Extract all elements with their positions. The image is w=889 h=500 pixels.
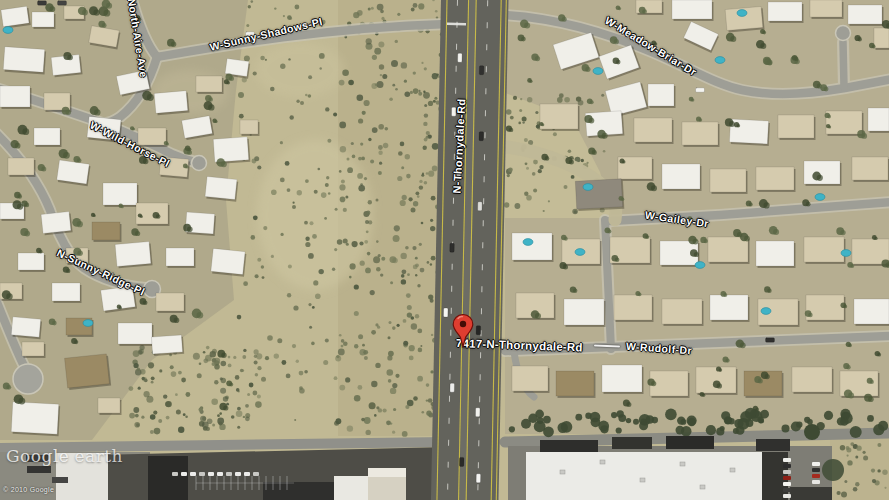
- tree: [50, 6, 56, 12]
- shrub: [292, 344, 296, 348]
- shrub: [413, 396, 418, 401]
- shrub: [863, 451, 866, 454]
- shrub: [385, 127, 389, 131]
- shrub: [412, 246, 416, 250]
- rooftop-unit: [700, 485, 705, 489]
- tree: [563, 264, 568, 269]
- tree: [221, 353, 226, 358]
- house-roof: [662, 164, 700, 189]
- shrub: [424, 113, 428, 117]
- vehicle: [696, 88, 705, 92]
- shrub: [884, 487, 886, 489]
- tree: [106, 3, 112, 9]
- parked-car: [783, 476, 791, 480]
- shrub: [372, 55, 377, 60]
- tree: [156, 214, 161, 219]
- shrub: [314, 190, 318, 194]
- tree: [765, 374, 770, 379]
- shrub: [400, 142, 405, 147]
- shrub: [159, 369, 162, 372]
- shrub: [388, 379, 392, 383]
- shrub: [175, 393, 178, 396]
- building-strip: [790, 487, 832, 500]
- house: [614, 295, 654, 322]
- shrub: [410, 91, 413, 94]
- tree-line: [521, 419, 531, 429]
- shrub: [252, 159, 257, 164]
- shrub: [423, 91, 425, 93]
- tree: [719, 368, 723, 372]
- tree: [729, 121, 735, 127]
- shrub: [393, 408, 396, 411]
- shrub: [362, 344, 365, 347]
- shrub: [308, 303, 311, 306]
- shrub: [395, 374, 399, 378]
- tree: [102, 23, 107, 28]
- shrub: [389, 321, 392, 324]
- house-roof: [708, 237, 748, 262]
- shrub: [360, 143, 363, 146]
- tree: [763, 31, 767, 35]
- vehicle: [475, 408, 480, 417]
- shrub: [129, 413, 135, 419]
- tree: [874, 237, 877, 240]
- tree: [626, 402, 631, 407]
- shrub: [199, 363, 202, 366]
- shrub: [339, 184, 345, 190]
- shrub: [379, 64, 384, 69]
- shrub: [265, 59, 267, 61]
- shrub: [228, 356, 231, 359]
- tree-line: [796, 421, 802, 427]
- shrub: [296, 360, 299, 363]
- tree: [638, 293, 642, 297]
- shrub: [354, 344, 358, 348]
- shrub: [320, 67, 322, 69]
- house: [34, 128, 62, 147]
- shrub: [380, 273, 383, 276]
- house: [3, 47, 46, 75]
- parked-car: [199, 472, 205, 476]
- shrub: [193, 353, 200, 360]
- shrub: [395, 88, 398, 91]
- shrub: [148, 362, 154, 368]
- shrub: [243, 281, 248, 286]
- shrub: [352, 155, 356, 159]
- house-roof: [22, 342, 44, 356]
- shrub: [381, 17, 384, 20]
- tree: [22, 128, 29, 135]
- shrub: [390, 281, 393, 284]
- shrub: [520, 98, 522, 100]
- house: [512, 366, 550, 393]
- house-roof: [240, 120, 258, 134]
- parked-car: [812, 480, 820, 484]
- house: [792, 367, 834, 394]
- tree-line: [665, 409, 677, 421]
- shrub: [154, 428, 161, 435]
- shrub: [518, 122, 521, 125]
- tree: [607, 229, 611, 233]
- shrub: [347, 158, 350, 161]
- tree-line: [824, 411, 833, 420]
- house: [92, 222, 122, 242]
- shrub: [136, 423, 140, 427]
- shrub: [335, 355, 341, 361]
- shrub: [418, 348, 423, 353]
- house: [56, 160, 90, 186]
- shrub: [426, 383, 430, 387]
- shrub: [392, 84, 395, 87]
- tree: [15, 143, 21, 149]
- shrub: [270, 87, 275, 92]
- tree: [17, 194, 22, 199]
- shrub: [210, 351, 216, 357]
- house: [868, 108, 889, 133]
- vehicle: [450, 383, 455, 392]
- shrub: [402, 269, 407, 274]
- tree: [147, 94, 154, 101]
- shrub: [401, 253, 407, 259]
- swimming-pool: [593, 68, 603, 75]
- vehicle: [443, 308, 448, 317]
- tree-line: [575, 414, 582, 421]
- tree: [94, 109, 100, 115]
- house: [682, 122, 720, 147]
- tree: [188, 147, 192, 151]
- house: [211, 248, 247, 276]
- shrub: [402, 195, 407, 200]
- house-roof: [92, 222, 120, 240]
- house: [512, 233, 554, 262]
- tree: [651, 381, 656, 386]
- tree: [140, 215, 143, 218]
- shrub: [325, 183, 329, 187]
- tree: [822, 459, 844, 481]
- tree-line: [509, 426, 515, 432]
- parked-car: [244, 472, 250, 476]
- shrub: [424, 67, 427, 70]
- shrub: [277, 338, 282, 343]
- shrub: [304, 221, 308, 225]
- tree: [758, 378, 763, 383]
- tree: [824, 87, 829, 92]
- swimming-pool: [841, 250, 851, 257]
- shrub: [525, 162, 528, 165]
- house: [103, 183, 139, 207]
- swimming-pool: [83, 320, 93, 327]
- shrub: [261, 265, 264, 268]
- shrub: [178, 427, 184, 433]
- tree: [121, 205, 124, 208]
- shrub: [129, 386, 134, 391]
- shrub: [383, 408, 387, 412]
- shrub: [841, 492, 847, 498]
- shrub: [340, 146, 346, 152]
- house: [154, 91, 189, 116]
- tree-line: [867, 415, 874, 422]
- shrub: [411, 323, 417, 329]
- house-roof: [848, 5, 882, 24]
- shrub: [378, 41, 384, 47]
- shrub: [369, 402, 376, 409]
- house: [196, 76, 224, 94]
- house-roof: [196, 76, 222, 92]
- shrub: [510, 116, 514, 120]
- shrub: [847, 455, 849, 457]
- swimming-pool: [523, 239, 533, 246]
- shrub: [292, 205, 296, 209]
- tree: [848, 344, 852, 348]
- house-roof: [874, 28, 889, 48]
- house: [540, 104, 580, 131]
- shrub: [285, 161, 290, 166]
- house: [804, 161, 842, 186]
- shrub: [236, 411, 243, 418]
- parked-car: [253, 472, 259, 476]
- tree: [74, 340, 78, 344]
- shrub: [430, 370, 433, 373]
- shrub: [186, 392, 191, 397]
- tree: [24, 231, 30, 237]
- tree: [749, 203, 753, 207]
- shrub: [394, 225, 400, 231]
- tree-line: [807, 419, 813, 425]
- shrub: [244, 56, 250, 62]
- tree-line: [873, 424, 884, 435]
- shrub: [522, 117, 527, 122]
- tree-line: [558, 423, 568, 433]
- shrub: [150, 430, 154, 434]
- shrub: [236, 388, 240, 392]
- swimming-pool: [815, 194, 825, 201]
- tree: [615, 257, 620, 262]
- shrub: [249, 383, 254, 388]
- shrub: [339, 334, 342, 337]
- tree-line: [611, 412, 617, 418]
- tree: [767, 60, 773, 66]
- house-roof: [868, 108, 889, 131]
- tree: [808, 313, 813, 318]
- tree: [828, 126, 831, 129]
- tree-line: [676, 426, 685, 435]
- shrub: [368, 200, 372, 204]
- tree: [877, 353, 881, 357]
- shrub: [354, 311, 359, 316]
- shrub: [343, 239, 348, 244]
- shrub: [245, 404, 249, 408]
- shrub: [309, 326, 312, 329]
- tree: [723, 293, 727, 297]
- tree: [52, 321, 57, 326]
- tree: [93, 9, 99, 15]
- building-roof-dark: [540, 440, 598, 453]
- vehicle: [476, 326, 481, 335]
- shrub: [846, 446, 850, 450]
- shrub: [571, 175, 575, 179]
- house-roof: [512, 233, 552, 260]
- tree: [704, 239, 708, 243]
- shrub: [367, 252, 371, 256]
- shrub: [528, 140, 533, 145]
- house: [98, 398, 122, 415]
- shrub: [366, 211, 370, 215]
- shrub: [417, 329, 422, 334]
- parked-car: [172, 472, 178, 476]
- placemark-pin[interactable]: [452, 313, 474, 348]
- shrub: [515, 203, 521, 209]
- shrub: [419, 180, 422, 183]
- shrub: [402, 431, 408, 437]
- shrub: [508, 167, 513, 172]
- shrub: [405, 246, 409, 250]
- shrub: [837, 491, 841, 495]
- shrub: [337, 239, 343, 245]
- shrub: [267, 335, 273, 341]
- shrub: [417, 376, 423, 382]
- shrub: [366, 38, 372, 44]
- shrub: [405, 91, 411, 97]
- dirt-patch: [255, 42, 345, 98]
- tree: [872, 45, 876, 49]
- house-roof: [98, 398, 120, 413]
- shrub: [415, 274, 417, 276]
- shrub: [163, 394, 167, 398]
- shrub: [333, 113, 337, 117]
- house-roof: [156, 293, 184, 311]
- shrub: [403, 341, 408, 346]
- tree-line: [598, 421, 609, 432]
- building: [148, 456, 188, 500]
- shrub: [423, 92, 430, 99]
- tree: [569, 160, 574, 165]
- truck: [27, 466, 51, 473]
- shrub: [305, 179, 309, 183]
- shrub: [430, 219, 433, 222]
- shrub: [134, 363, 139, 368]
- shrub: [415, 314, 419, 318]
- shrub: [352, 241, 358, 247]
- rooftop-unit: [560, 470, 565, 474]
- parked-car: [783, 494, 791, 498]
- shrub: [430, 263, 432, 265]
- shrub: [166, 416, 170, 420]
- tree: [174, 318, 180, 324]
- tree: [744, 236, 750, 242]
- shrub: [358, 157, 362, 161]
- house-roof: [602, 365, 642, 392]
- shrub: [219, 412, 222, 415]
- tree: [25, 203, 30, 208]
- tree: [104, 10, 111, 17]
- shrub: [203, 426, 208, 431]
- shrub: [319, 53, 325, 59]
- shrub: [431, 334, 433, 336]
- shrub: [253, 215, 258, 220]
- tree: [208, 97, 213, 102]
- shrub: [358, 385, 363, 390]
- house-roof: [804, 161, 840, 184]
- shrub: [433, 100, 436, 103]
- shrub: [146, 396, 153, 403]
- shrub: [364, 356, 368, 360]
- house-roof: [756, 167, 794, 190]
- house: [804, 237, 846, 264]
- parked-car: [783, 482, 791, 486]
- house: [166, 248, 196, 268]
- house-roof: [1, 6, 29, 26]
- shrub: [347, 425, 353, 431]
- shrub: [218, 422, 222, 426]
- shrub: [315, 294, 321, 300]
- shrub: [392, 326, 396, 330]
- house: [662, 164, 702, 191]
- shrub: [535, 111, 538, 114]
- tree: [208, 104, 214, 110]
- shrub: [357, 95, 364, 102]
- shrub: [150, 414, 156, 420]
- house-roof: [205, 176, 237, 199]
- shrub: [340, 197, 346, 203]
- house-roof: [34, 128, 60, 145]
- house-roof: [696, 367, 736, 393]
- tree: [215, 120, 218, 123]
- house-roof: [540, 104, 578, 129]
- house: [22, 342, 46, 358]
- shrub: [287, 188, 291, 192]
- shrub: [241, 369, 244, 372]
- shrub: [308, 94, 312, 98]
- shrub: [533, 189, 537, 193]
- house-roof: [136, 203, 168, 224]
- shrub: [280, 64, 285, 69]
- stop-line: [447, 23, 466, 26]
- shrub: [327, 139, 331, 143]
- shrub: [850, 442, 854, 446]
- shrub: [282, 360, 287, 365]
- shrub: [248, 5, 251, 8]
- shrub: [409, 197, 413, 201]
- shrub: [378, 124, 384, 130]
- shrub: [357, 10, 363, 16]
- tree: [858, 37, 862, 41]
- shrub: [422, 411, 425, 414]
- tree: [66, 269, 70, 273]
- shrub: [415, 263, 419, 267]
- house: [672, 0, 714, 21]
- tree: [223, 405, 228, 410]
- shrub: [349, 276, 352, 279]
- shrub: [299, 371, 304, 376]
- satellite-map-viewport[interactable]: North-Aire-Ave W-Sunny-Shadows-Pl W-Wild…: [0, 0, 889, 500]
- shrub: [548, 200, 550, 202]
- tree: [795, 57, 799, 61]
- shrub: [265, 356, 269, 360]
- shrub: [318, 168, 321, 171]
- tree: [590, 100, 594, 104]
- shrub: [339, 122, 346, 129]
- shrub: [294, 419, 296, 421]
- parked-car: [226, 472, 232, 476]
- shrub: [254, 349, 259, 354]
- shrub: [522, 121, 524, 123]
- shrub: [200, 416, 206, 422]
- house: [205, 176, 239, 201]
- shrub: [305, 237, 309, 241]
- shrub: [328, 192, 331, 195]
- rooftop-unit: [680, 462, 685, 466]
- tree: [740, 342, 746, 348]
